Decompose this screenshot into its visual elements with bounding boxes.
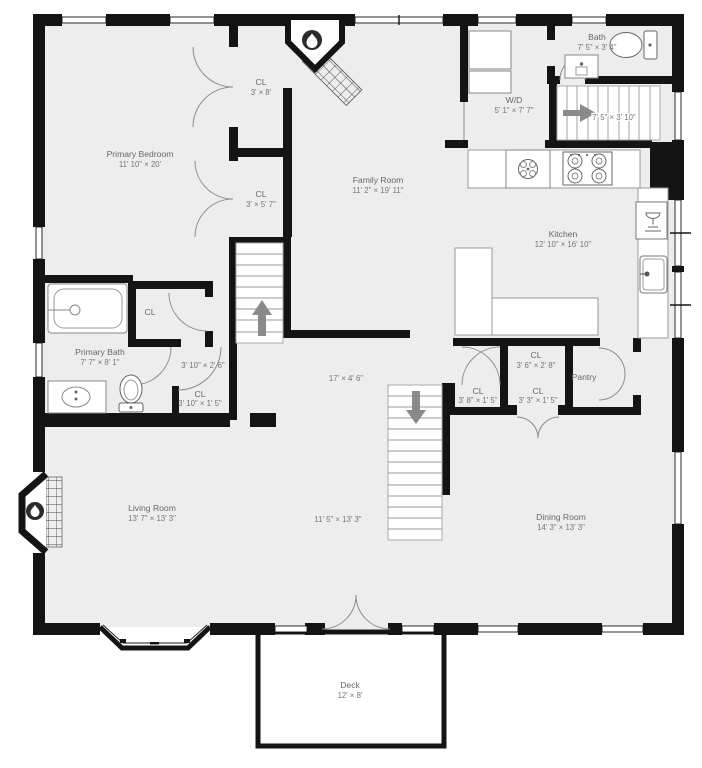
- label-vestibule-dims: 3' 10" × 2' 6": [181, 361, 225, 370]
- label-closet-bath: CL: [145, 307, 156, 317]
- label-deck: Deck: [340, 680, 360, 690]
- label-closet-mid-dims: 3' × 5' 7": [246, 200, 276, 209]
- label-primary-bedroom-dims: 11' 10" × 20': [119, 160, 162, 169]
- stove: [563, 152, 612, 185]
- bath-sink: [565, 55, 598, 78]
- floor-plan-canvas: Primary Bedroom 11' 10" × 20' CL 3' × 8'…: [0, 0, 702, 768]
- flame-icon: [26, 502, 44, 520]
- label-bath: Bath: [588, 32, 606, 42]
- label-closet-top: CL: [256, 77, 267, 87]
- label-deck-dims: 12' × 8': [338, 691, 363, 700]
- label-family-room-dims: 11' 2" × 19' 11": [353, 186, 404, 195]
- label-hallway-dims: 17' × 4' 6": [329, 374, 363, 383]
- flame-icon: [302, 30, 322, 50]
- label-living-room: Living Room: [128, 503, 176, 513]
- label-stairs-upper-dims: 7' 5" × 3' 10": [592, 113, 636, 122]
- label-closet-top-dims: 3' × 8': [251, 88, 272, 97]
- label-family-room: Family Room: [353, 175, 404, 185]
- floor-plan: Primary Bedroom 11' 10" × 20' CL 3' × 8'…: [0, 0, 702, 768]
- label-bath-dims: 7' 5" × 3' 4": [577, 43, 616, 52]
- label-pantry: Pantry: [572, 372, 598, 382]
- washer: [469, 31, 511, 69]
- stairs-center-up: [236, 243, 283, 343]
- label-closet-33-dims: 3' 3" × 1' 5": [518, 396, 557, 405]
- toilet: [610, 31, 657, 59]
- label-closet-38-dims: 3' 8" × 1' 5": [458, 396, 497, 405]
- kitchen-island: [492, 298, 598, 335]
- label-laundry: W/D: [506, 95, 523, 105]
- label-closet-36: CL: [531, 350, 542, 360]
- label-living-room-dims: 13' 7" × 13' 3": [128, 514, 176, 523]
- bay-window: [100, 625, 210, 648]
- label-kitchen-dims: 12' 10" × 16' 10": [535, 240, 592, 249]
- stairs-down: [388, 385, 442, 540]
- primary-toilet: [119, 375, 143, 412]
- fireplace-living: [22, 474, 62, 552]
- label-closet-hall: CL: [195, 389, 206, 399]
- kitchen-sink: [640, 256, 667, 293]
- label-primary-bedroom: Primary Bedroom: [107, 149, 174, 159]
- label-closet-mid: CL: [256, 189, 267, 199]
- dishwasher-rack-icon: [636, 202, 667, 239]
- label-foyer-dims: 11' 5" × 13' 3": [314, 515, 361, 524]
- kitchen-island: [455, 248, 492, 335]
- kitchen-counter-top: [468, 150, 640, 188]
- label-primary-bath: Primary Bath: [75, 347, 125, 357]
- label-closet-38: CL: [473, 386, 484, 396]
- primary-sink: [48, 381, 106, 413]
- label-primary-bath-dims: 7' 7" × 8' 1": [80, 358, 119, 367]
- label-closet-36-dims: 3' 6" × 2' 8": [516, 361, 555, 370]
- label-dining-room: Dining Room: [536, 512, 586, 522]
- hearth-tiles: [46, 477, 62, 547]
- label-laundry-dims: 5' 1" × 7' 7": [494, 106, 533, 115]
- label-closet-33: CL: [533, 386, 544, 396]
- label-closet-hall-dims: 3' 10" × 1' 5": [178, 399, 222, 408]
- bathtub: [48, 284, 127, 333]
- label-kitchen: Kitchen: [549, 229, 578, 239]
- dryer: [469, 71, 511, 93]
- dishwasher-icon: [506, 150, 550, 188]
- label-dining-room-dims: 14' 3" × 13' 3": [537, 523, 585, 532]
